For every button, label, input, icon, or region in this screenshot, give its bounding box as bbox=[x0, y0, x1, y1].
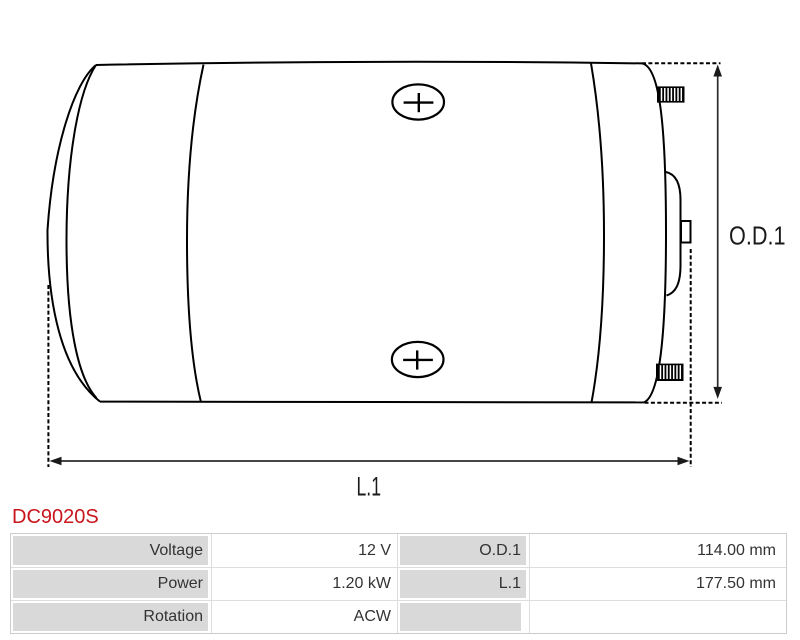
svg-text:L.1: L.1 bbox=[357, 472, 382, 502]
svg-text:O.D.1: O.D.1 bbox=[729, 221, 786, 251]
